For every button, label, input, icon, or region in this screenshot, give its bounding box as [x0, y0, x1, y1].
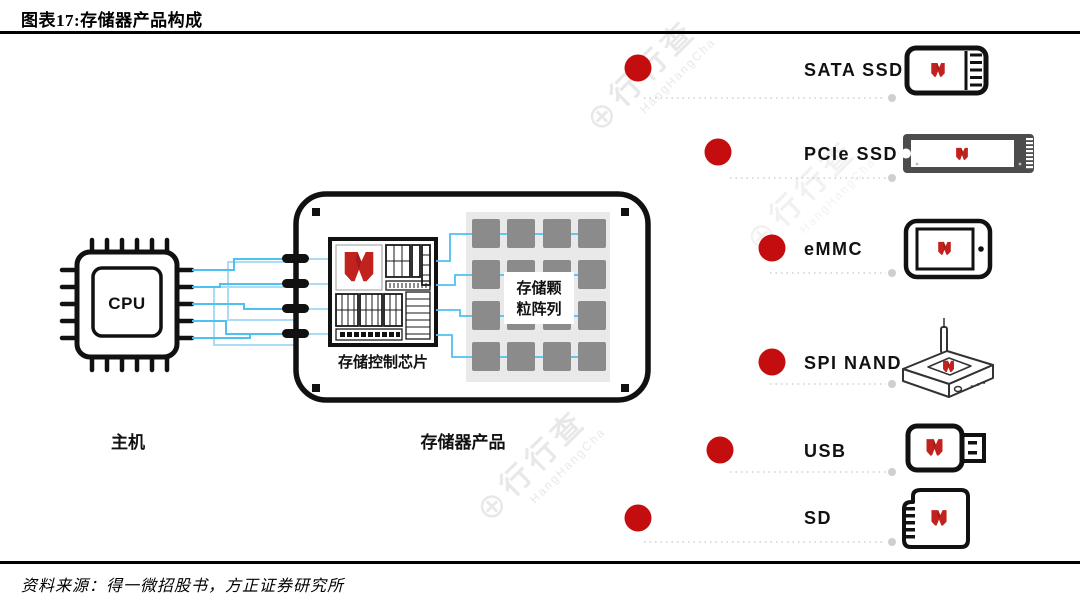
spi-nand-router-icon: [903, 318, 993, 397]
product-label: USB: [804, 441, 847, 461]
red-dot: [759, 235, 786, 262]
product-row-pcie-ssd: PCIe SSD: [705, 134, 1035, 182]
emmc-tablet-icon: [906, 221, 990, 277]
connector-end-dot: [888, 94, 896, 102]
array-caption-line2: 粒阵列: [516, 300, 561, 318]
cpu-chip-icon: CPU: [62, 240, 192, 370]
sd-card-icon: [904, 490, 968, 547]
board-caption: 存储器产品: [421, 432, 506, 452]
array-caption-line1: 存储颗: [516, 279, 561, 297]
red-dot: [625, 505, 652, 532]
product-label: SATA SSD: [804, 60, 904, 80]
product-row-sata-ssd: SATA SSD: [625, 48, 987, 102]
product-row-spi-nand: SPI NAND: [759, 318, 994, 397]
bottom-rule: [0, 561, 1080, 564]
connector-end-dot: [888, 538, 896, 546]
usb-drive-icon: [908, 426, 984, 470]
red-dot: [705, 139, 732, 166]
product-row-sd: SD: [625, 490, 969, 547]
pcie-ssd-icon: [901, 134, 1034, 173]
controller-caption: 存储控制芯片: [338, 353, 428, 371]
host-caption: 主机: [111, 432, 145, 452]
cpu-label: CPU: [108, 294, 145, 313]
red-dot: [707, 437, 734, 464]
product-label: eMMC: [804, 239, 863, 259]
product-row-usb: USB: [707, 426, 985, 476]
connector-end-dot: [888, 380, 896, 388]
connector-end-dot: [888, 468, 896, 476]
red-dot: [625, 55, 652, 82]
product-label: SD: [804, 508, 832, 528]
sata-ssd-icon: [907, 48, 986, 93]
product-label: PCIe SSD: [804, 144, 898, 164]
controller-pad-dots: [340, 332, 400, 337]
figure: ⊕行行查 HangHangCha ⊕行行查 HangHangCha ⊕行行查 H…: [0, 0, 1080, 601]
product-label: SPI NAND: [804, 353, 902, 373]
connector-end-dot: [888, 269, 896, 277]
connector-end-dot: [888, 174, 896, 182]
red-dot: [759, 349, 786, 376]
figure-source: 资料来源：得一微招股书，方正证券研究所: [21, 572, 344, 596]
product-row-emmc: eMMC: [759, 221, 991, 277]
memory-product-board: 存储控制芯片 存储颗 粒阵列: [282, 194, 648, 452]
diagram-canvas: CPU 主机: [0, 0, 1080, 601]
